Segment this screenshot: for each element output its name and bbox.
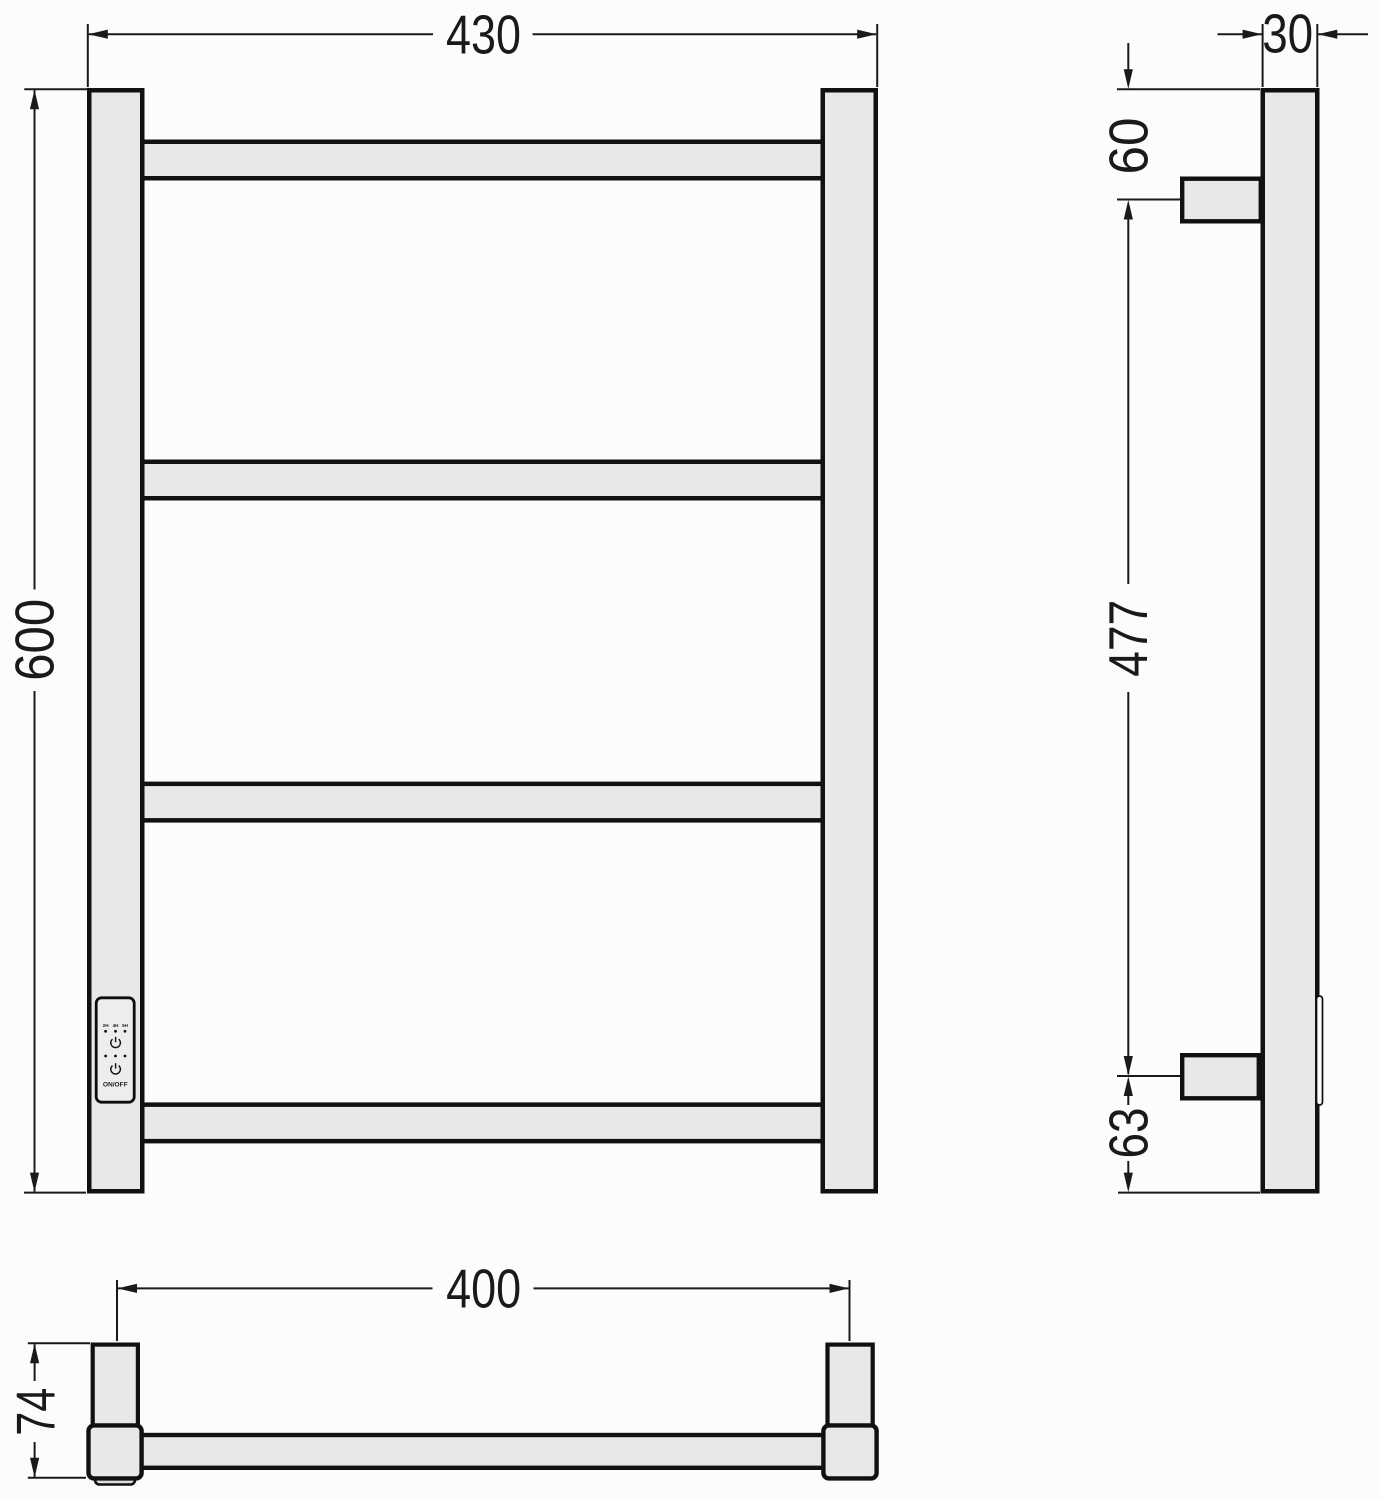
svg-text:4H: 4H (113, 1023, 120, 1028)
svg-text:400: 400 (446, 1258, 521, 1320)
svg-text:60: 60 (1098, 118, 1160, 175)
svg-text:63: 63 (1098, 1108, 1160, 1159)
svg-text:30: 30 (1262, 3, 1313, 65)
svg-text:6H: 6H (122, 1023, 129, 1028)
svg-text:74: 74 (5, 1388, 67, 1436)
svg-text:430: 430 (446, 3, 521, 65)
svg-text:2H: 2H (103, 1023, 110, 1028)
svg-text:600: 600 (3, 599, 65, 681)
svg-text:ON/OFF: ON/OFF (103, 1082, 128, 1089)
svg-text:477: 477 (1097, 600, 1159, 677)
